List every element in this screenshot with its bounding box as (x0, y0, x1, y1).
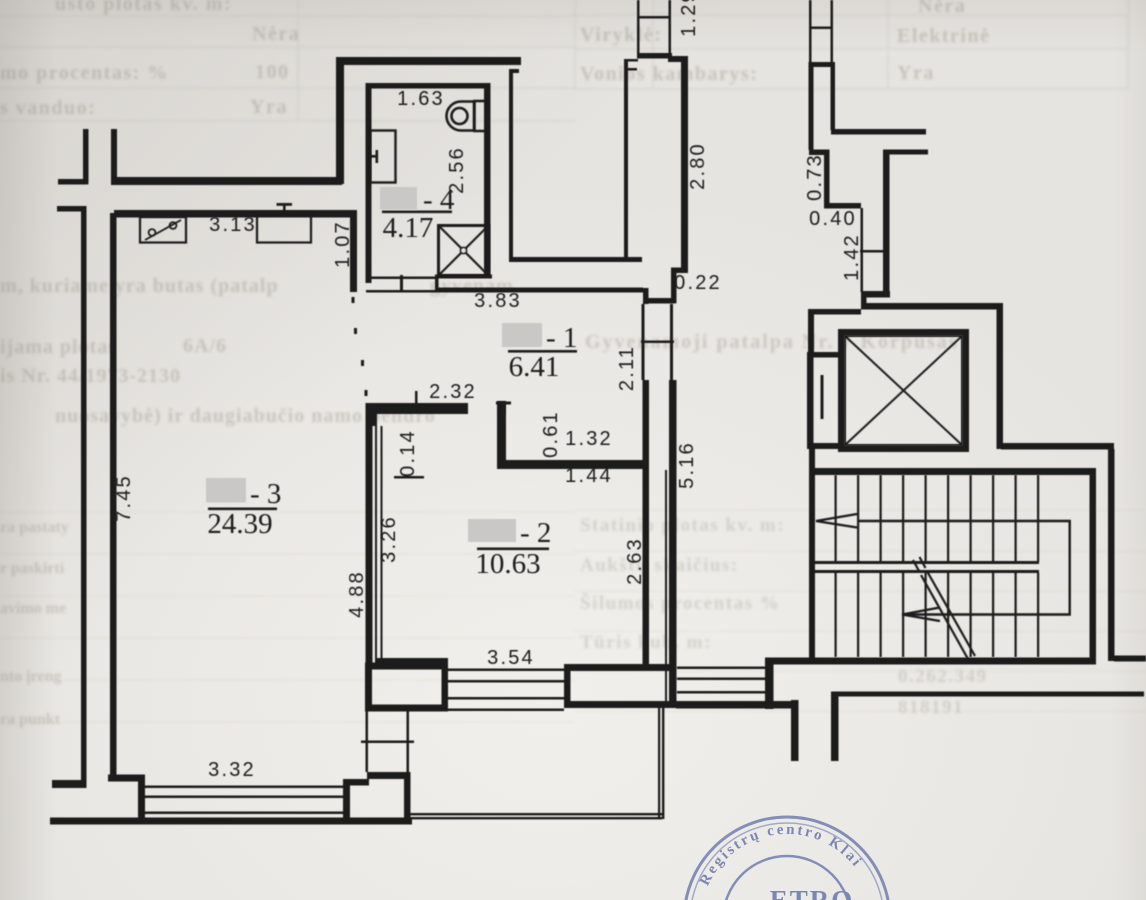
svg-text:1.63: 1.63 (397, 88, 445, 110)
svg-text:ETRO: ETRO (770, 885, 855, 900)
svg-text:ra pastaty: ra pastaty (0, 519, 69, 536)
svg-text:s vanduo:: s vanduo: (0, 97, 96, 119)
svg-text:m, kuriame yra butas (patalp: m, kuriame yra butas (patalp (0, 275, 279, 297)
svg-text:mo procentas: %: mo procentas: % (0, 62, 169, 84)
svg-text:10.63: 10.63 (475, 548, 540, 580)
svg-text:- 3: - 3 (250, 478, 281, 510)
svg-text:0.73: 0.73 (804, 153, 826, 201)
svg-text:3.54: 3.54 (487, 647, 535, 669)
svg-text:0.14: 0.14 (397, 429, 419, 477)
svg-text:1.07: 1.07 (332, 220, 354, 268)
svg-text:Nėra: Nėra (918, 0, 966, 17)
svg-text:avimo me: avimo me (0, 600, 66, 617)
svg-text:Yra: Yra (250, 96, 288, 118)
svg-text:4.17: 4.17 (383, 212, 434, 244)
svg-text:Nėra: Nėra (252, 23, 300, 45)
svg-text:Statinio plotas kv. m:: Statinio plotas kv. m: (580, 515, 785, 536)
svg-text:is Nr. 44/1973-2130: is Nr. 44/1973-2130 (0, 365, 181, 387)
svg-text:7.45: 7.45 (113, 474, 135, 522)
svg-text:1.42: 1.42 (841, 233, 863, 281)
svg-text:3.32: 3.32 (208, 759, 256, 781)
svg-text:6.41: 6.41 (509, 351, 560, 383)
svg-text:r paskirti: r paskirti (0, 560, 65, 577)
svg-text:2.11: 2.11 (616, 345, 638, 391)
svg-text:1.29: 1.29 (678, 0, 700, 37)
svg-text:4.88: 4.88 (346, 570, 368, 618)
svg-text:Elektrinė: Elektrinė (897, 25, 991, 47)
svg-text:Šilumos procentas %: Šilumos procentas % (580, 592, 780, 614)
svg-text:24.39: 24.39 (207, 508, 272, 540)
svg-text:1.32: 1.32 (565, 428, 613, 450)
svg-text:0.61: 0.61 (540, 410, 562, 458)
svg-text:3.26: 3.26 (378, 515, 400, 563)
svg-text:2.80: 2.80 (687, 142, 709, 190)
svg-text:- 1: - 1 (546, 322, 577, 354)
svg-text:3.13: 3.13 (209, 214, 257, 236)
svg-text:5.16: 5.16 (676, 441, 698, 489)
svg-text:Vonios kambarys:: Vonios kambarys: (580, 63, 758, 85)
svg-text:0.262.349: 0.262.349 (898, 666, 988, 687)
svg-text:ra punkt: ra punkt (0, 711, 61, 728)
svg-text:1.44: 1.44 (565, 465, 613, 487)
svg-text:2.32: 2.32 (429, 381, 477, 403)
svg-text:- 2: - 2 (520, 517, 551, 549)
svg-text:Yra: Yra (897, 62, 935, 84)
svg-text:3.83: 3.83 (474, 290, 522, 312)
svg-text:818191: 818191 (898, 697, 964, 718)
svg-text:usto plotas kv. m:: usto plotas kv. m: (55, 0, 232, 15)
svg-text:2.63: 2.63 (624, 537, 646, 585)
svg-text:ijama plotas: ijama plotas (0, 336, 117, 358)
svg-text:6A/6: 6A/6 (183, 335, 227, 357)
svg-text:100: 100 (255, 61, 290, 83)
svg-text:Aukštų skaičius:: Aukštų skaičius: (580, 555, 739, 576)
svg-text:Viryklė:: Viryklė: (580, 24, 662, 46)
svg-text:nto įreng: nto įreng (0, 668, 61, 685)
svg-text:0.22: 0.22 (674, 272, 722, 294)
svg-text:0.40: 0.40 (809, 208, 857, 230)
